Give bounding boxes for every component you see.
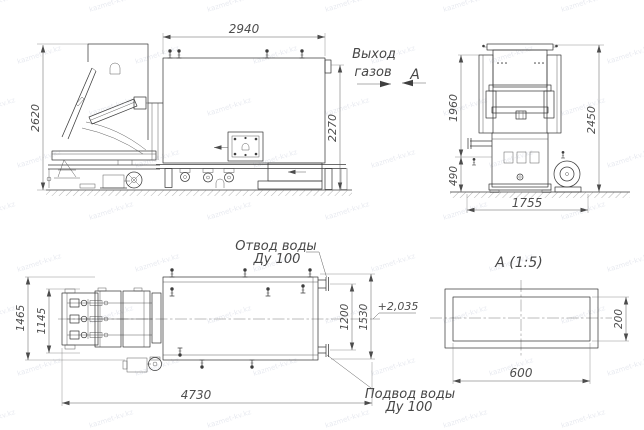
dim-490-label: 490 (448, 166, 460, 186)
dim-left-height: 2620 (29, 44, 88, 190)
watermark-text: kazmet-kv.kz (16, 252, 62, 274)
dim-right-height: 2270 (326, 65, 344, 190)
watermark-text: kazmet-kv.kz (442, 408, 488, 430)
gas-outlet-annotation: Выход газов А (352, 47, 426, 84)
watermark-text: kazmet-kv.kz (206, 200, 252, 222)
watermark-text: kazmet-kv.kz (134, 252, 180, 274)
watermark-text: kazmet-kv.kz (88, 0, 134, 14)
feeder-shafts (67, 299, 152, 339)
watermark-layer: kazmet-kv.kzkazmet-kv.kzkazmet-kv.kzkazm… (0, 0, 644, 430)
watermark-text: kazmet-kv.kz (560, 0, 606, 14)
section-view-arrow: А (402, 67, 426, 83)
dim-overall-length: 4730 (62, 348, 372, 406)
watermark-text: kazmet-kv.kz (252, 356, 298, 378)
dim-2940-label: 2940 (229, 22, 260, 36)
watermark-text: kazmet-kv.kz (606, 148, 644, 170)
watermark-text: kazmet-kv.kz (606, 356, 644, 378)
watermark-text: kazmet-kv.kz (442, 0, 488, 14)
watermark-text: kazmet-kv.kz (0, 0, 17, 14)
watermark-text: kazmet-kv.kz (560, 96, 606, 118)
dim-2450-label: 2450 (585, 106, 598, 134)
gas-outlet-label-line2: газов (354, 65, 391, 80)
water-outlet-label-line2: Ду 100 (253, 252, 301, 267)
main-body (163, 49, 331, 163)
ground-line (46, 190, 352, 196)
watermark-text: kazmet-kv.kz (134, 356, 180, 378)
watermark-text: kazmet-kv.kz (206, 408, 252, 430)
watermark-text: kazmet-kv.kz (442, 304, 488, 326)
watermark-text: kazmet-kv.kz (370, 148, 416, 170)
watermark-text: kazmet-kv.kz (370, 356, 416, 378)
dim-1145-label: 1145 (36, 307, 48, 334)
dim-feeder-width: 1145 (36, 289, 80, 353)
watermark-text: kazmet-kv.kz (606, 252, 644, 274)
support-rollers (180, 169, 234, 183)
side-view: 2940 2620 2270 (29, 22, 352, 196)
watermark-text: kazmet-kv.kz (324, 0, 370, 14)
plan-main-body (163, 268, 318, 368)
elevation-mark: +2,035 (373, 300, 418, 319)
inspection-hatch (214, 132, 263, 161)
section-arrow-label: А (409, 67, 420, 83)
watermark-text: kazmet-kv.kz (16, 44, 62, 66)
watermark-text: kazmet-kv.kz (88, 200, 134, 222)
watermark-text: kazmet-kv.kz (560, 200, 606, 222)
dim-duct-height: 200 (592, 297, 629, 341)
watermark-text: kazmet-kv.kz (370, 252, 416, 274)
dim-2620-label: 2620 (29, 104, 42, 132)
watermark-text: kazmet-kv.kz (16, 356, 62, 378)
watermark-text: kazmet-kv.kz (442, 200, 488, 222)
front-view: 1960 490 2450 1755 (447, 44, 630, 213)
drive-sprocket (126, 172, 142, 188)
drawing-canvas: kazmet-kv.kzkazmet-kv.kzkazmet-kv.kzkazm… (0, 0, 644, 430)
dim-200-label: 200 (613, 309, 625, 329)
dim-1530-label: 1530 (358, 303, 370, 330)
dim-600-label: 600 (510, 366, 533, 380)
blower-fan (554, 161, 581, 192)
gas-outlet-label-line1: Выход (352, 47, 396, 62)
watermark-text: kazmet-kv.kz (206, 96, 252, 118)
water-inlet-flange (318, 344, 329, 357)
watermark-text: kazmet-kv.kz (488, 148, 534, 170)
watermark-text: kazmet-kv.kz (560, 304, 606, 326)
watermark-text: kazmet-kv.kz (134, 44, 180, 66)
watermark-text: kazmet-kv.kz (560, 408, 606, 430)
water-outlet-callout: Отвод воды Ду 100 (235, 239, 326, 277)
watermark-text: kazmet-kv.kz (488, 44, 534, 66)
dim-lower-height: 490 (448, 157, 492, 192)
dim-4730-label: 4730 (181, 388, 212, 402)
watermark-text: kazmet-kv.kz (88, 408, 134, 430)
water-outlet-flange (318, 277, 329, 291)
watermark-text: kazmet-kv.kz (324, 200, 370, 222)
side-columns (479, 55, 561, 133)
section-a-title: А (1:5) (494, 255, 542, 271)
watermark-text: kazmet-kv.kz (0, 408, 17, 430)
dim-1200-label: 1200 (339, 303, 351, 330)
gas-outlet-stub (325, 60, 331, 73)
feeder-platform (47, 151, 160, 188)
watermark-text: kazmet-kv.kz (324, 408, 370, 430)
elevation-value: +2,035 (378, 300, 419, 313)
watermark-text: kazmet-kv.kz (0, 200, 17, 222)
watermark-text: kazmet-kv.kz (0, 96, 17, 118)
technical-drawing: kazmet-kv.kzkazmet-kv.kzkazmet-kv.kzkazm… (0, 0, 644, 430)
watermark-text: kazmet-kv.kz (206, 0, 252, 14)
watermark-text: kazmet-kv.kz (206, 304, 252, 326)
mid-section (486, 85, 554, 119)
dim-1960-label: 1960 (447, 94, 460, 122)
watermark-text: kazmet-kv.kz (606, 44, 644, 66)
watermark-text: kazmet-kv.kz (252, 44, 298, 66)
feeder-motor (80, 175, 130, 188)
dim-1755-label: 1755 (512, 196, 543, 210)
dim-2270-label: 2270 (326, 114, 339, 142)
dim-1465-label: 1465 (15, 304, 27, 331)
base-frame (156, 163, 347, 190)
water-inlet-label-line2: Ду 100 (385, 400, 433, 415)
